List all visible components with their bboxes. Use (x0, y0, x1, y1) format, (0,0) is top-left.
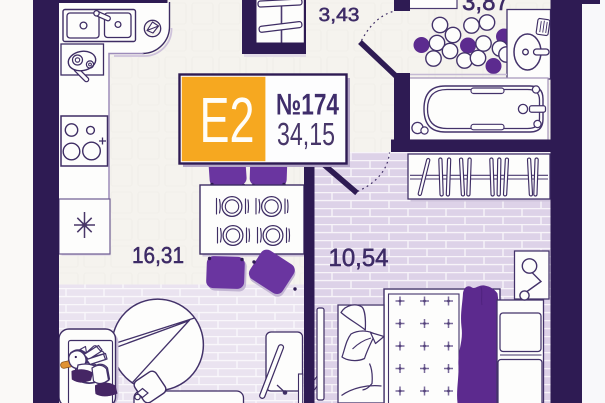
svg-text:10,54: 10,54 (329, 244, 389, 272)
svg-text:34,15: 34,15 (277, 116, 335, 152)
svg-text:E2: E2 (200, 84, 255, 156)
svg-text:3,87: 3,87 (462, 0, 509, 16)
svg-text:3,43: 3,43 (319, 5, 360, 26)
svg-text:16,31: 16,31 (132, 242, 184, 268)
